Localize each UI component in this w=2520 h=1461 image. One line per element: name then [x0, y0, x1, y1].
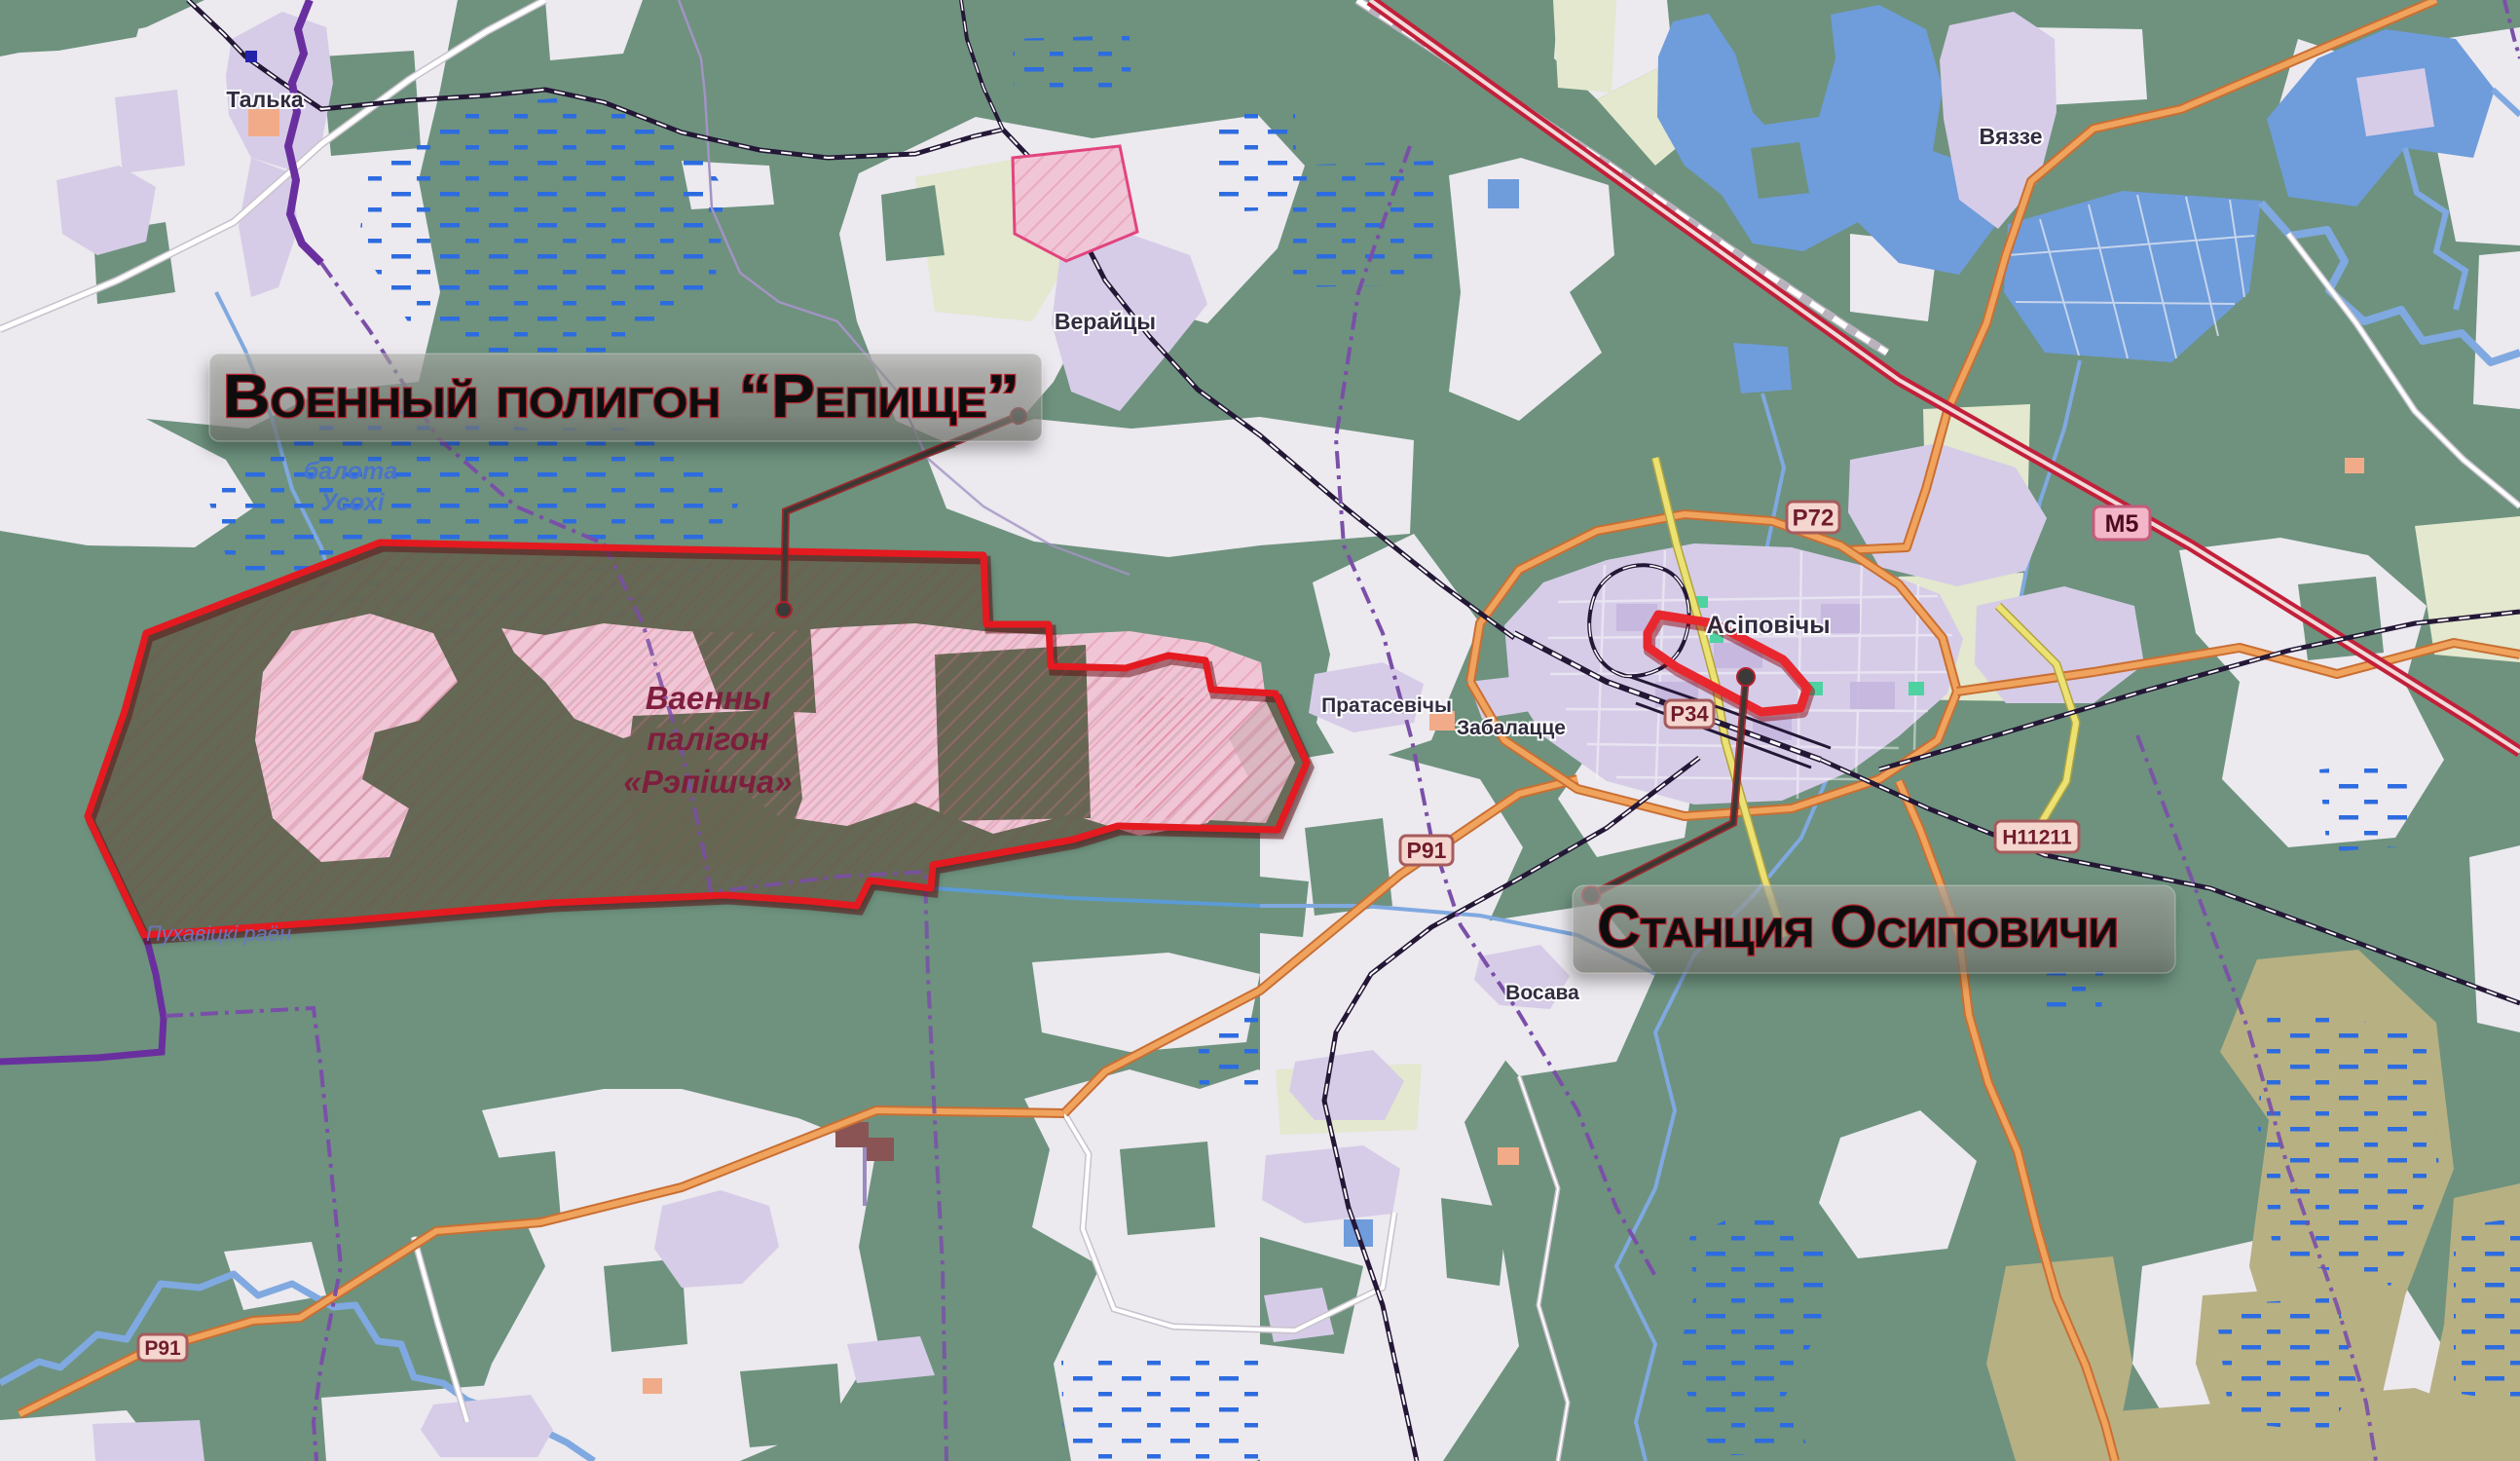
svg-text:Пратасевічы: Пратасевічы [1321, 694, 1452, 717]
svg-text:Станция Осиповичи: Станция Осиповичи [1598, 894, 2119, 959]
svg-text:«Рэпішча»: «Рэпішча» [623, 764, 792, 800]
svg-text:Асіповічы: Асіповічы [1706, 612, 1830, 639]
svg-text:Восава: Восава [1505, 982, 1579, 1004]
svg-text:Пухавіцкі раён: Пухавіцкі раён [146, 921, 291, 946]
svg-text:Талька: Талька [226, 87, 304, 112]
svg-text:Забалацце: Забалацце [1457, 717, 1566, 739]
svg-text:Н11211: Н11211 [2002, 826, 2072, 848]
svg-text:Усохі: Усохі [320, 489, 385, 516]
svg-text:Р91: Р91 [1407, 838, 1447, 863]
svg-text:Р72: Р72 [1793, 505, 1834, 531]
svg-text:Ваенны: Ваенны [646, 680, 771, 716]
svg-text:Вяззе: Вяззе [1979, 124, 2042, 149]
svg-text:М5: М5 [2105, 510, 2139, 538]
svg-text:Р34: Р34 [1670, 702, 1709, 727]
svg-text:балота: балота [304, 458, 397, 485]
svg-text:палігон: палігон [647, 721, 769, 757]
svg-text:Верайцы: Верайцы [1055, 309, 1156, 334]
svg-text:Военный полигон “Репище”: Военный полигон “Репище” [223, 363, 1019, 431]
svg-text:Р91: Р91 [144, 1337, 181, 1360]
